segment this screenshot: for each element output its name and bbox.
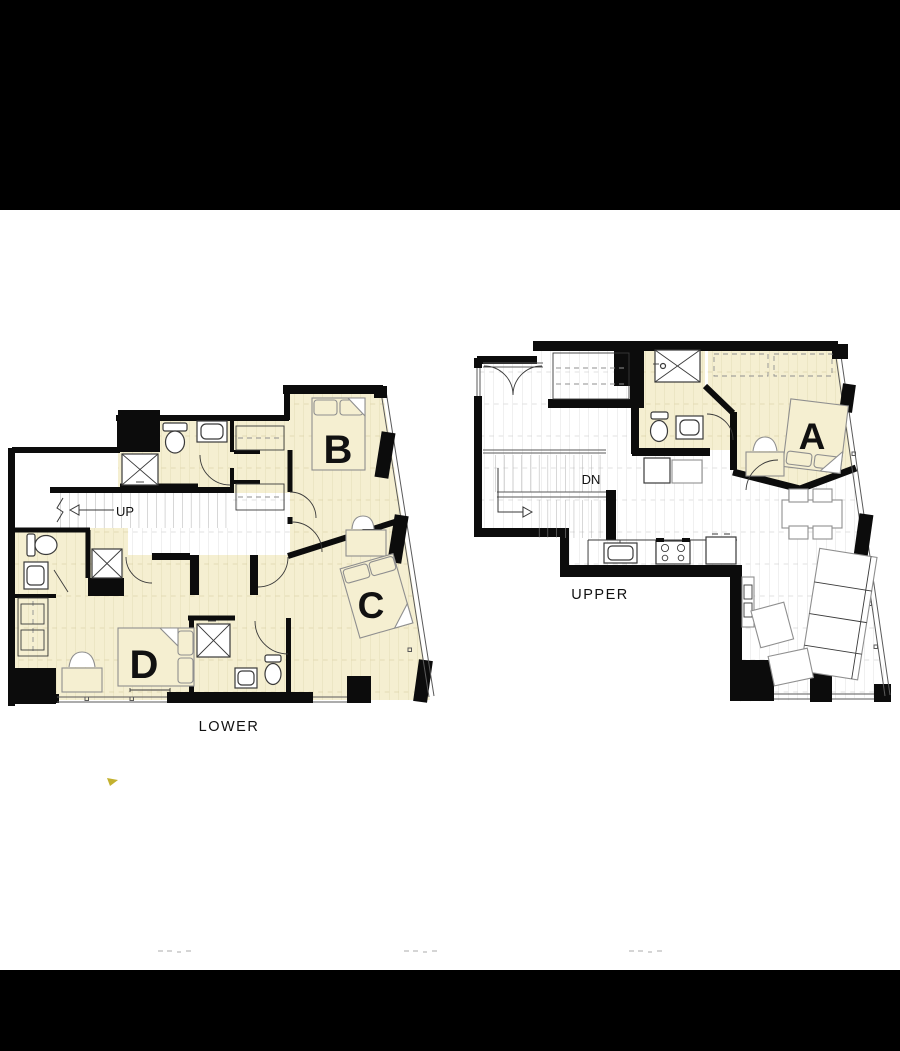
upper-plan-title: UPPER <box>571 587 628 603</box>
faint-marks <box>158 951 662 952</box>
floorplan-image: UP <box>0 0 900 1051</box>
dishwasher <box>706 534 736 564</box>
sink <box>676 416 703 439</box>
room-label-d: D <box>130 643 159 687</box>
sink <box>24 562 48 589</box>
room-label-a: A <box>799 416 826 457</box>
kitchen <box>588 534 754 627</box>
top-black-band <box>0 0 900 210</box>
lower-plan-title: LOWER <box>199 719 260 735</box>
shower <box>197 621 230 657</box>
shower <box>122 454 158 485</box>
shower <box>92 549 122 578</box>
shower <box>653 350 700 382</box>
stair-label-dn: DN <box>582 472 601 487</box>
toilet <box>651 412 669 442</box>
lower-plan: UP <box>8 385 434 735</box>
sink <box>197 421 227 442</box>
upper-plan: DN <box>474 341 891 702</box>
stray-mark <box>107 778 118 786</box>
floorplan-page: UP <box>0 0 900 1051</box>
kitchen-sink <box>604 540 637 563</box>
room-label-c: C <box>358 585 385 626</box>
room-label-b: B <box>324 428 353 472</box>
bottom-black-band <box>0 970 900 1051</box>
stove <box>656 538 690 564</box>
toilet <box>265 655 281 685</box>
sink <box>235 668 257 688</box>
island-counter <box>742 577 754 627</box>
stair-label-up: UP <box>116 504 134 519</box>
fridge-counter <box>644 458 702 483</box>
toilet <box>27 534 57 556</box>
